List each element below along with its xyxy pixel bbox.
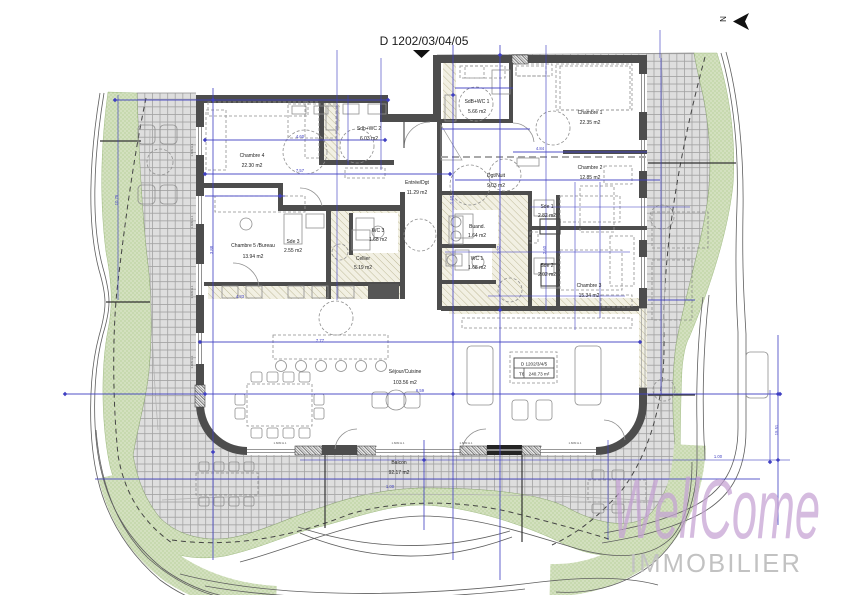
svg-text:Chambre 5 /Bureau: Chambre 5 /Bureau — [231, 243, 275, 249]
svg-text:Balcon: Balcon — [391, 460, 407, 466]
svg-text:5.19 m2: 5.19 m2 — [354, 265, 372, 271]
svg-text:4.83: 4.83 — [236, 294, 245, 299]
svg-text:WC 3: WC 3 — [372, 228, 385, 234]
svg-text:11.29 m2: 11.29 m2 — [407, 190, 428, 196]
svg-text:Sdb+WC 2: Sdb+WC 2 — [357, 126, 382, 132]
svg-text:N: N — [719, 16, 728, 22]
svg-text:WC 1: WC 1 — [471, 256, 484, 262]
svg-text:103.56 m2: 103.56 m2 — [393, 380, 417, 386]
svg-text:2.55 m2: 2.55 m2 — [284, 248, 302, 254]
svg-text:240.73 m²: 240.73 m² — [529, 372, 550, 377]
svg-text:5.66 m2: 5.66 m2 — [468, 109, 486, 115]
svg-text:7.77: 7.77 — [316, 338, 325, 343]
svg-text:1.60M H.1: 1.60M H.1 — [569, 441, 582, 445]
svg-text:1.60M H.1: 1.60M H.1 — [392, 441, 405, 445]
svg-text:1.60M H.1: 1.60M H.1 — [190, 285, 194, 298]
svg-text:9.03 m2: 9.03 m2 — [487, 183, 505, 189]
svg-text:12.85 m2: 12.85 m2 — [580, 175, 601, 181]
svg-text:92.17 m2: 92.17 m2 — [389, 470, 410, 476]
svg-text:SdB+WC 1: SdB+WC 1 — [465, 99, 490, 105]
svg-text:Sde 3: Sde 3 — [286, 239, 299, 245]
svg-text:10.75: 10.75 — [114, 194, 119, 205]
svg-text:Entrée/Dgt: Entrée/Dgt — [405, 180, 430, 186]
svg-text:T6: T6 — [519, 372, 525, 377]
svg-text:Cellier: Cellier — [356, 256, 371, 262]
svg-text:4.60: 4.60 — [296, 134, 305, 139]
svg-text:1.40: 1.40 — [449, 195, 454, 204]
svg-text:22.35 m2: 22.35 m2 — [580, 120, 601, 126]
svg-text:D 1202/03/04/05: D 1202/03/04/05 — [380, 34, 469, 48]
svg-text:2.60: 2.60 — [542, 245, 547, 254]
svg-text:2.82 m2: 2.82 m2 — [538, 213, 556, 219]
svg-text:1.00: 1.00 — [714, 454, 723, 459]
svg-text:4.84: 4.84 — [536, 146, 545, 151]
svg-text:Dgt/Nuit: Dgt/Nuit — [487, 173, 506, 179]
svg-text:22.30 m2: 22.30 m2 — [242, 163, 263, 169]
svg-text:1.68 m2: 1.68 m2 — [468, 265, 486, 271]
svg-text:13.94 m2: 13.94 m2 — [243, 254, 264, 260]
svg-text:Chambre 3: Chambre 3 — [577, 283, 602, 289]
svg-text:IMMOBILIER: IMMOBILIER — [630, 550, 802, 578]
svg-text:15.34 m2: 15.34 m2 — [579, 293, 600, 299]
svg-text:Sde 1: Sde 1 — [540, 204, 553, 210]
svg-text:15.51: 15.51 — [774, 424, 779, 435]
svg-text:Chambre 2: Chambre 2 — [578, 165, 603, 171]
svg-text:2.02 m2: 2.02 m2 — [538, 272, 556, 278]
svg-text:Sde 2: Sde 2 — [540, 263, 553, 269]
svg-text:1.00: 1.00 — [386, 484, 395, 489]
svg-text:Chambre 1: Chambre 1 — [578, 110, 603, 116]
svg-text:D 1202/3/4/5: D 1202/3/4/5 — [521, 362, 548, 367]
svg-text:1.68 m2: 1.68 m2 — [369, 237, 387, 243]
svg-text:3.88: 3.88 — [209, 245, 214, 254]
svg-text:7.57: 7.57 — [296, 168, 305, 173]
svg-text:1.60M H.1: 1.60M H.1 — [190, 355, 194, 368]
svg-text:1.32: 1.32 — [496, 245, 501, 254]
svg-text:WellCome: WellCome — [612, 462, 820, 556]
svg-text:1.64 m2: 1.64 m2 — [468, 233, 486, 239]
svg-text:1.60M H.1: 1.60M H.1 — [190, 215, 194, 228]
svg-text:6.03 m2: 6.03 m2 — [360, 136, 378, 142]
svg-text:1.60M H.1: 1.60M H.1 — [274, 441, 287, 445]
svg-text:1.60M H.1: 1.60M H.1 — [190, 143, 194, 156]
svg-text:Chambre 4: Chambre 4 — [240, 153, 265, 159]
svg-text:1.60M H.1: 1.60M H.1 — [460, 441, 473, 445]
svg-text:Séjour/Cuisine: Séjour/Cuisine — [389, 369, 422, 375]
svg-text:Buand.: Buand. — [469, 224, 485, 230]
svg-text:6.59: 6.59 — [416, 388, 425, 393]
